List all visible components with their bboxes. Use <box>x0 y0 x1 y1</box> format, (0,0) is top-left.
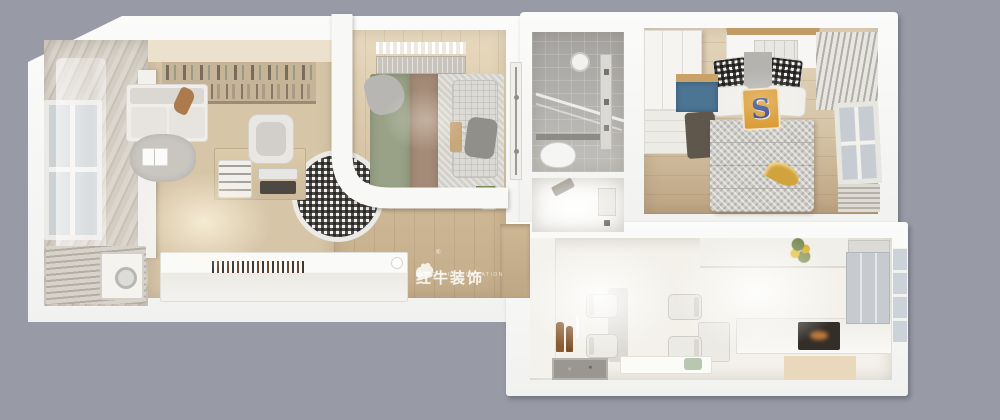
study-top-wall-face <box>148 40 334 62</box>
right-bedroom-window <box>834 101 882 185</box>
mid-bedroom-shelf <box>376 42 466 54</box>
mid-bedroom-radiator <box>376 56 466 74</box>
mid-bed-dark-cushion <box>463 116 498 160</box>
sink-counter <box>552 358 608 380</box>
wine-bottle <box>556 322 564 352</box>
laptop-keyboard <box>260 181 296 194</box>
desk-chair <box>248 114 294 164</box>
watermark: ® 红牛装饰 HONG NIU DECORATION <box>412 248 522 294</box>
open-book <box>142 148 168 166</box>
monogram-pillow: S <box>741 87 781 131</box>
corner-louver-panel <box>816 32 878 110</box>
watermark-latin: HONG NIU DECORATION <box>416 273 504 278</box>
registered-mark: ® <box>436 250 440 256</box>
mid-bed-runner <box>410 74 438 198</box>
floor-drain <box>604 220 610 226</box>
wine-bottle <box>566 326 573 352</box>
low-sideboard-cabinet <box>160 252 408 302</box>
floorplan-render: S ® 红牛装饰 HONG NIU DECORATION <box>0 0 1000 420</box>
sideboard-book-row <box>212 261 304 273</box>
blue-desk <box>676 82 718 112</box>
washing-machine <box>100 252 144 300</box>
plant-pot <box>482 198 496 210</box>
bathroom-dark-shelf <box>536 134 600 140</box>
kitchen-upper-cabinets <box>700 238 848 268</box>
paper-stack-stool <box>218 160 252 198</box>
shower-head <box>570 52 590 72</box>
waffle-duvet <box>710 120 814 212</box>
monogram-letter: S <box>751 95 772 123</box>
green-glassware <box>684 358 702 370</box>
laundry-unit <box>598 188 616 216</box>
kitchen-right-window <box>893 248 907 342</box>
under-window-radiator <box>838 184 880 212</box>
fridge-glass-cabinet <box>846 252 890 324</box>
oven-cooktop <box>798 322 840 350</box>
desk-wood-trim <box>676 74 718 82</box>
dining-chair <box>668 294 702 320</box>
bathroom-fixture-column <box>600 54 612 150</box>
mid-bedroom-door <box>510 62 522 180</box>
toilet <box>540 142 576 168</box>
dining-chair <box>586 334 618 358</box>
beige-counter-section <box>784 356 856 380</box>
laptop-screen <box>258 168 298 180</box>
bed-tray <box>450 122 462 152</box>
sideboard-knob <box>392 258 402 268</box>
flower-vase <box>786 234 816 264</box>
candle-sticks <box>576 316 586 338</box>
kitchen-left-counter <box>530 238 556 378</box>
dining-chair <box>586 294 618 318</box>
sheer-curtain <box>56 58 106 258</box>
